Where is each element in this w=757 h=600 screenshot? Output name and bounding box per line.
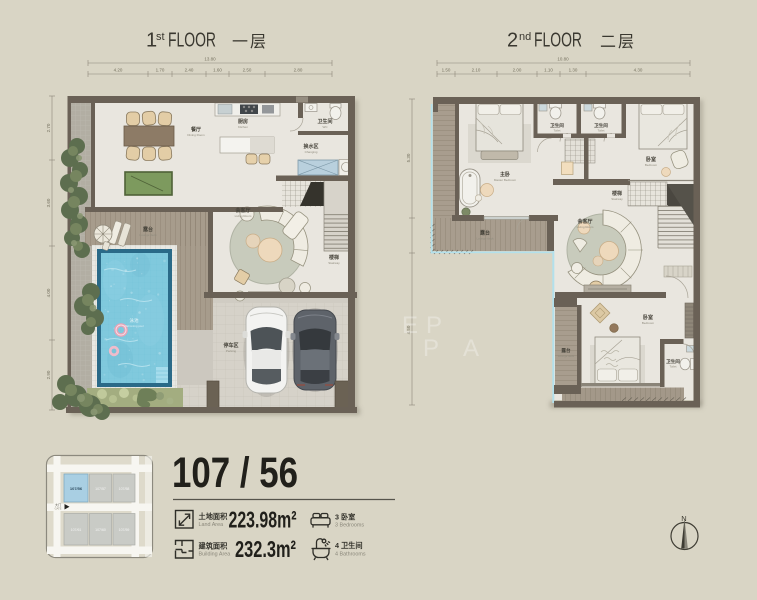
svg-text:楼梯: 楼梯 xyxy=(612,190,622,197)
svg-text:5.30: 5.30 xyxy=(406,153,411,162)
svg-text:1.70: 1.70 xyxy=(156,68,165,73)
svg-text:卧室: 卧室 xyxy=(643,314,653,321)
svg-text:Toilet: Toilet xyxy=(669,365,676,369)
svg-text:Parking: Parking xyxy=(226,349,237,353)
svg-text:2.40: 2.40 xyxy=(185,68,194,73)
svg-text:223.98m²: 223.98m² xyxy=(229,507,297,533)
svg-text:107 / 56: 107 / 56 xyxy=(172,449,298,497)
svg-text:露台: 露台 xyxy=(561,347,571,354)
svg-text:3.60: 3.60 xyxy=(46,198,51,207)
svg-text:1.10: 1.10 xyxy=(544,68,553,73)
svg-text:nd: nd xyxy=(519,31,531,43)
svg-text:FLOOR: FLOOR xyxy=(168,30,216,52)
svg-text:GATE: GATE xyxy=(55,507,62,511)
svg-text:13.80: 13.80 xyxy=(204,57,216,62)
svg-text:A: A xyxy=(463,335,479,362)
svg-text:泳池: 泳池 xyxy=(130,317,139,324)
svg-text:232.3m²: 232.3m² xyxy=(235,536,296,562)
svg-text:卧室: 卧室 xyxy=(646,156,656,163)
svg-text:Toilet: Toilet xyxy=(597,129,604,133)
svg-text:107/59: 107/59 xyxy=(119,528,130,532)
svg-text:一层: 一层 xyxy=(232,34,268,51)
svg-text:Living Room: Living Room xyxy=(235,214,252,218)
svg-text:Toilet: Toilet xyxy=(553,129,560,133)
svg-text:E: E xyxy=(402,312,418,339)
svg-text:2.80: 2.80 xyxy=(294,68,303,73)
svg-text:卫生间: 卫生间 xyxy=(317,118,332,125)
svg-text:2.00: 2.00 xyxy=(513,68,522,73)
svg-text:FLOOR: FLOOR xyxy=(534,30,582,52)
svg-text:107/57: 107/57 xyxy=(95,487,106,491)
svg-text:Lounge deck: Lounge deck xyxy=(476,237,494,241)
svg-text:Master Bedroom: Master Bedroom xyxy=(494,178,517,182)
svg-text:2.90: 2.90 xyxy=(46,370,51,379)
svg-text:3 卧室: 3 卧室 xyxy=(335,513,355,522)
svg-text:Bedroom: Bedroom xyxy=(642,321,655,325)
svg-text:1.50: 1.50 xyxy=(442,68,451,73)
svg-text:露台: 露台 xyxy=(480,230,490,237)
svg-text:土地面积: 土地面积 xyxy=(199,512,229,521)
svg-text:2.10: 2.10 xyxy=(472,68,481,73)
svg-text:Land Area: Land Area xyxy=(199,522,224,528)
svg-text:建筑面积: 建筑面积 xyxy=(199,542,229,551)
svg-text:4.30: 4.30 xyxy=(634,68,643,73)
svg-text:餐厅: 餐厅 xyxy=(190,126,201,133)
svg-text:4.00: 4.00 xyxy=(46,288,51,297)
svg-text:1.60: 1.60 xyxy=(213,68,222,73)
svg-text:Lounge deck: Lounge deck xyxy=(139,233,157,237)
svg-text:st: st xyxy=(156,31,165,43)
svg-text:会客厅: 会客厅 xyxy=(576,218,592,225)
svg-text:Bedroom: Bedroom xyxy=(645,163,658,167)
svg-text:二层: 二层 xyxy=(600,34,636,51)
svg-text:Building Area: Building Area xyxy=(199,552,231,558)
svg-text:107/60: 107/60 xyxy=(95,528,106,532)
svg-text:3 Bedrooms: 3 Bedrooms xyxy=(335,523,364,529)
svg-text:P: P xyxy=(423,335,439,362)
svg-text:楼梯: 楼梯 xyxy=(329,254,339,261)
svg-text:4 Bathrooms: 4 Bathrooms xyxy=(335,552,366,558)
svg-text:2.50: 2.50 xyxy=(243,68,252,73)
svg-text:会客厅: 会客厅 xyxy=(234,207,250,214)
svg-text:Dining Room: Dining Room xyxy=(187,133,205,137)
svg-text:停车区: 停车区 xyxy=(223,342,238,349)
svg-text:107/56: 107/56 xyxy=(70,486,83,491)
svg-text:4.20: 4.20 xyxy=(114,68,123,73)
svg-text:Lounge deck: Lounge deck xyxy=(558,354,575,358)
svg-text:Stairway: Stairway xyxy=(328,261,340,265)
svg-text:大门: 大门 xyxy=(55,502,61,507)
svg-text:10.80: 10.80 xyxy=(557,57,569,62)
svg-text:1.30: 1.30 xyxy=(569,68,578,73)
svg-text:主卧: 主卧 xyxy=(500,171,510,178)
svg-text:Changing: Changing xyxy=(305,150,318,154)
svg-text:露台: 露台 xyxy=(143,226,153,233)
svg-text:N: N xyxy=(681,514,686,523)
svg-text:4 卫生间: 4 卫生间 xyxy=(335,541,363,550)
svg-text:厨房: 厨房 xyxy=(238,118,248,125)
svg-text:107/61: 107/61 xyxy=(71,528,82,532)
svg-text:换水区: 换水区 xyxy=(303,143,318,150)
svg-text:Swimming pool: Swimming pool xyxy=(125,324,144,328)
svg-text:Living Room: Living Room xyxy=(577,225,594,229)
svg-text:2.70: 2.70 xyxy=(46,123,51,132)
svg-text:WC: WC xyxy=(323,125,329,129)
svg-text:2: 2 xyxy=(507,30,518,52)
svg-text:Stairway: Stairway xyxy=(611,197,623,201)
svg-text:107/58: 107/58 xyxy=(119,487,130,491)
svg-text:Kitchen: Kitchen xyxy=(238,125,248,129)
